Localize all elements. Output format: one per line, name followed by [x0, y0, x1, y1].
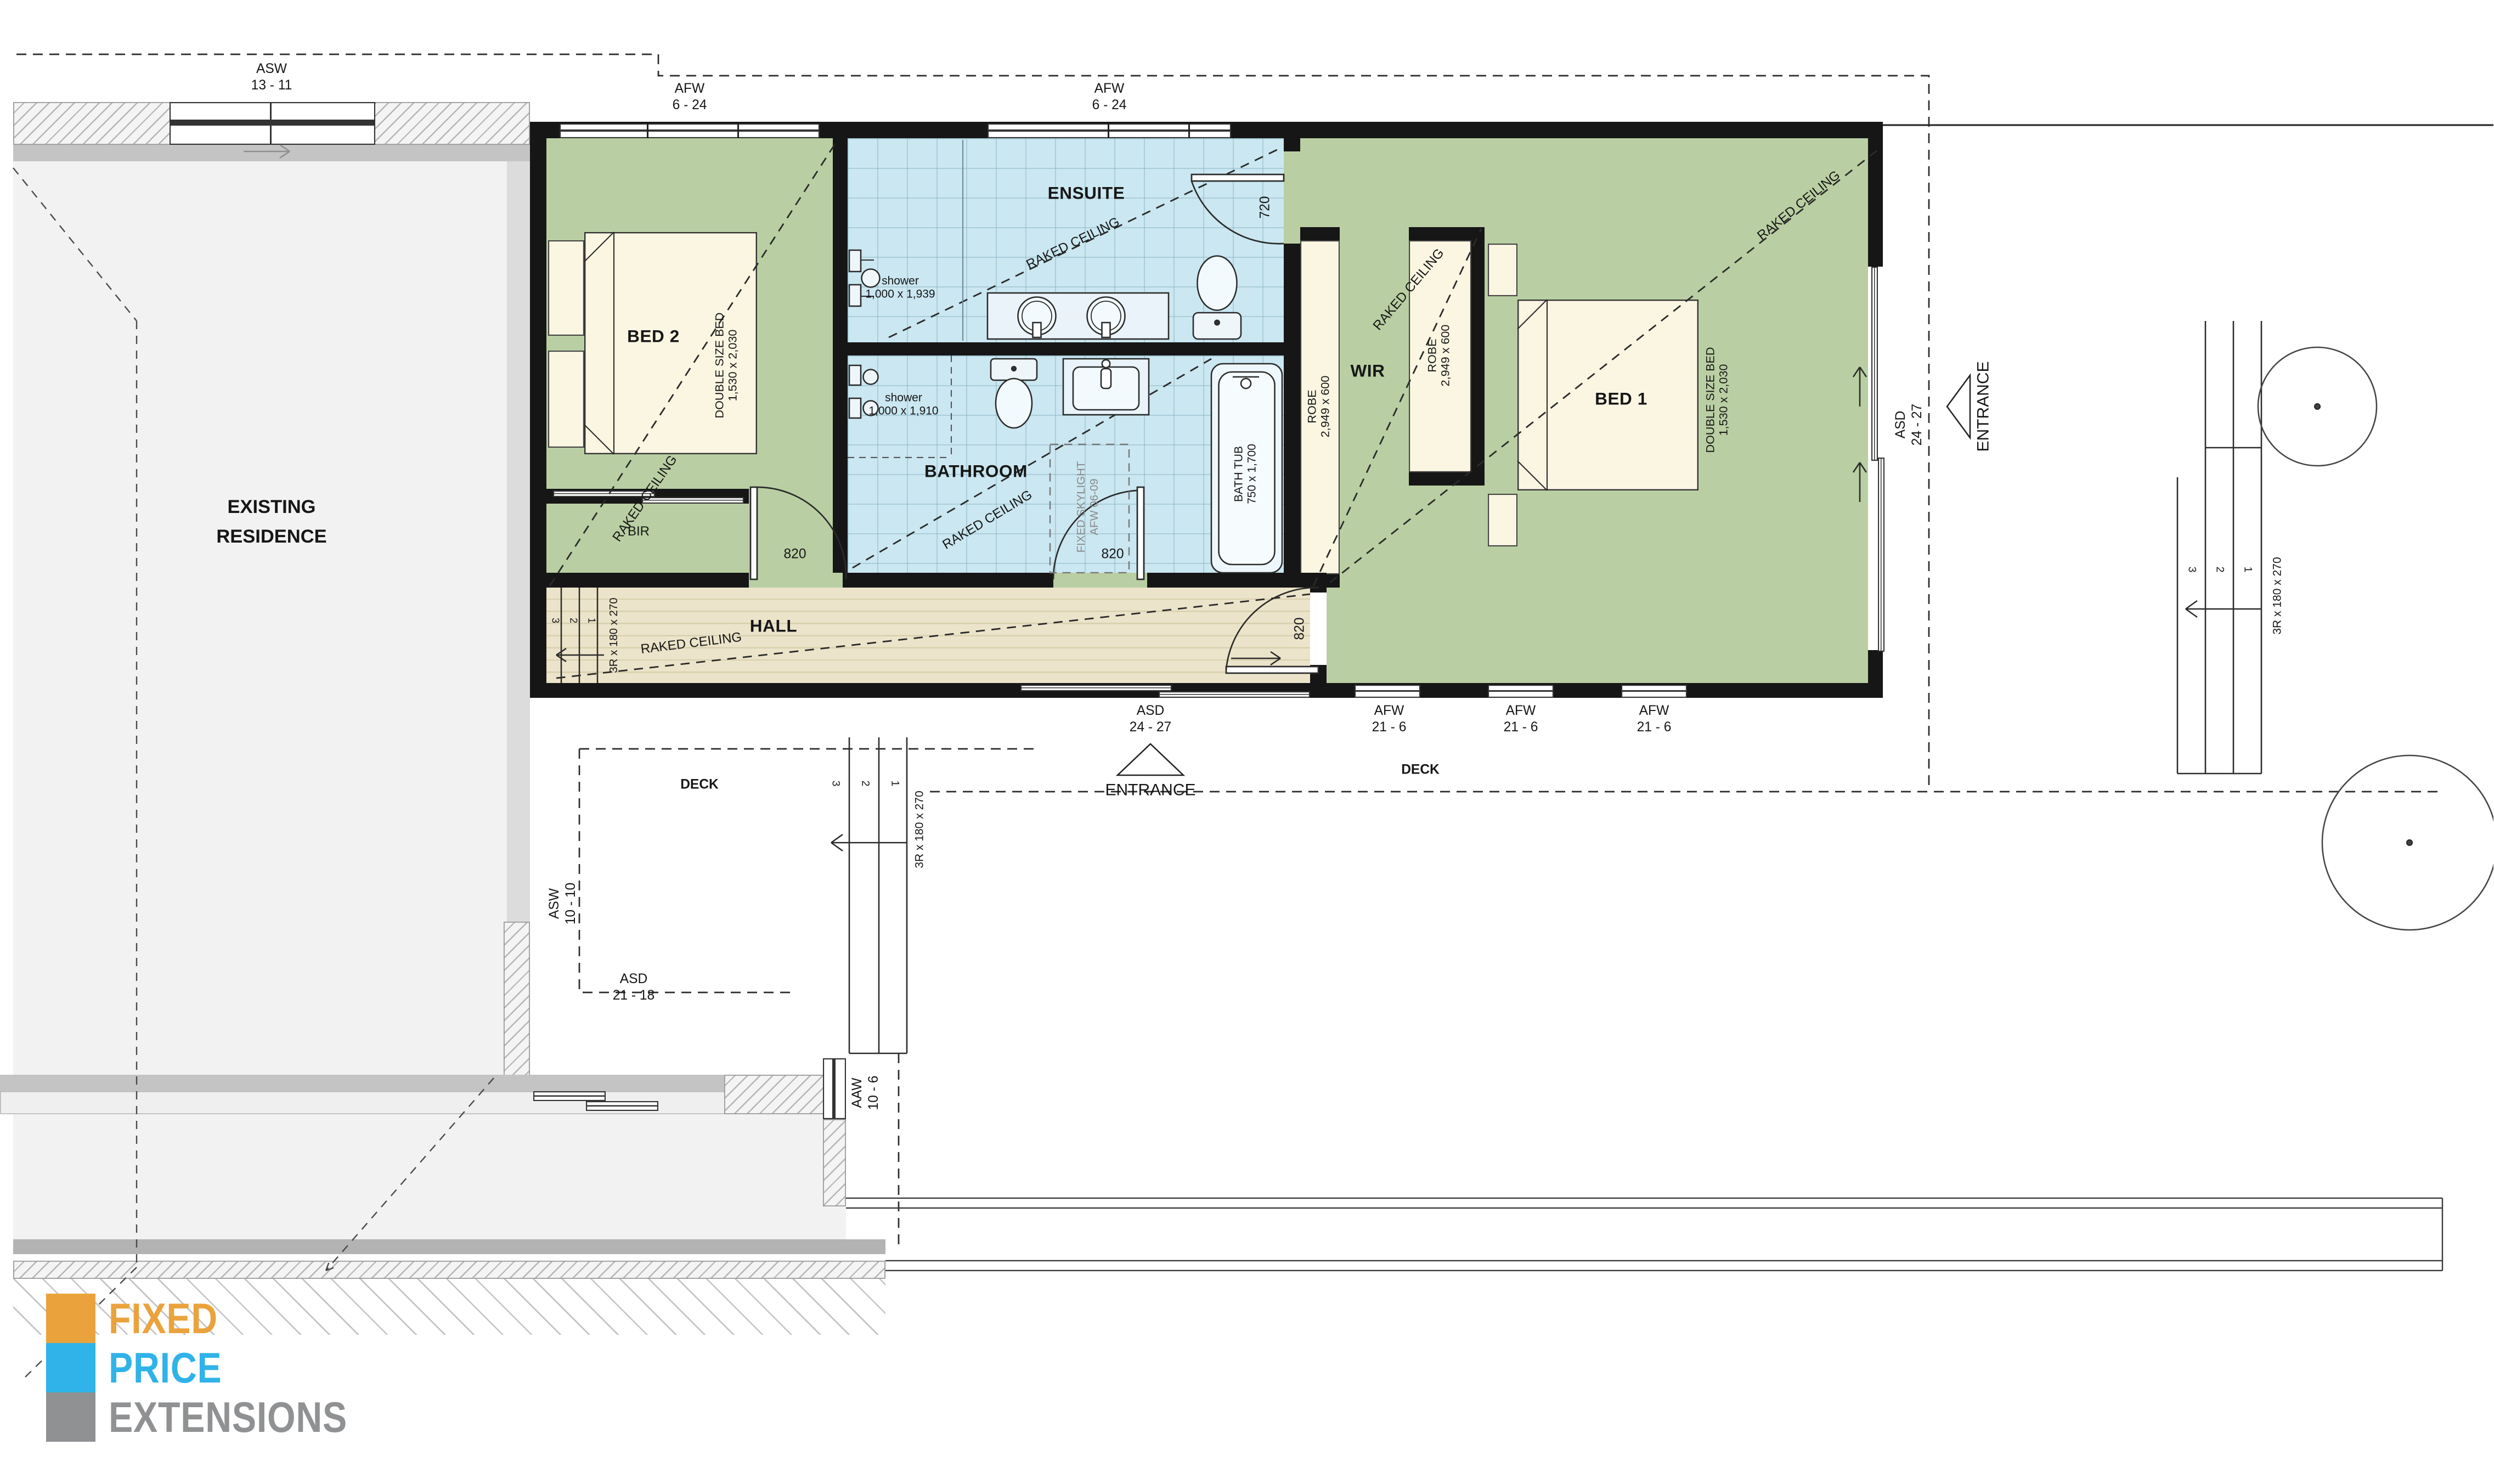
bathroom-floor: [848, 356, 1284, 573]
label-asw-10-10: ASW10 - 10: [547, 883, 579, 925]
wall-left: [530, 122, 546, 698]
label-asw-13-11: ASW13 - 11: [251, 61, 292, 93]
wall-robe-left-top: [1300, 227, 1340, 240]
hall-stair-num-1: 1: [583, 618, 595, 623]
bed2-bedside-bottom: [548, 351, 584, 448]
deck-stair-spec: 3R x 180 x 270: [915, 791, 929, 868]
wall-wir-lower: [1284, 244, 1300, 588]
dim-bed1: DOUBLE SIZE BED1,530 x 2,030: [1705, 347, 1733, 453]
label-robe-left: ROBE2,949 x 600: [1306, 376, 1334, 438]
label-entrance-right: ENTRANCE: [1975, 361, 1994, 452]
wall-right-top: [1868, 122, 1883, 267]
residence-asw-window-divider: [270, 102, 272, 145]
garden-stair-spec: 3R x 180 x 270: [2273, 557, 2287, 634]
room-label-ensuite: ENSUITE: [1048, 184, 1125, 204]
afw-window-ensuite-mullion-1: [1108, 123, 1110, 138]
label-afw-21-6-a: AFW21 - 6: [1372, 703, 1407, 735]
room-label-deck-right: DECK: [1401, 762, 1440, 778]
logo-square-blue: [46, 1343, 95, 1392]
label-afw-6-24-ensuite: AFW6 - 24: [1092, 81, 1127, 113]
label-robe-right: ROBE2,949 x 600: [1426, 325, 1454, 387]
label-skylight: FIXED SKYLIGHTAFW 06-09: [1076, 461, 1103, 553]
wall-ensuite-bathroom: [848, 342, 1284, 356]
afw-window-bed2: [560, 123, 820, 138]
doorpost-hall-top: [1310, 573, 1327, 593]
afw-window-b1: [1355, 684, 1420, 697]
wall-bed2-ensuite: [833, 138, 848, 573]
label-asd-bottom: ASD24 - 27: [1130, 703, 1172, 735]
room-label-bathroom: BATHROOM: [924, 462, 1028, 482]
wall-hall-b: [843, 573, 1053, 588]
wall-hall-a: [546, 573, 749, 588]
room-label-wir: WIR: [1350, 362, 1385, 382]
deck-stair-num-1: 1: [888, 781, 900, 787]
room-label-bed1: BED 1: [1595, 390, 1647, 410]
residence-bottom-wall: [0, 1075, 846, 1091]
deck-stair-num-3: 3: [828, 781, 841, 787]
label-shower-bathroom: shower1,000 x 1,910: [868, 393, 938, 420]
afw-window-bed2-mullion-1: [647, 123, 649, 138]
asd-door-hall-panel-2: [1159, 691, 1310, 697]
wall-robe-right-bottom: [1409, 472, 1485, 486]
label-bathtub: BATH TUB750 x 1,700: [1233, 444, 1261, 504]
garden-stair-num-1: 1: [2241, 567, 2253, 573]
logo-text-fixed: FIXED: [109, 1294, 237, 1343]
existing-residence-ext: [530, 1114, 846, 1239]
logo-text-extensions: EXTENSIONS: [109, 1392, 390, 1442]
label-afw-6-24-bed2: AFW6 - 24: [673, 81, 707, 113]
afw-window-b2: [1488, 684, 1554, 697]
bir-sliding-panel-2: [642, 496, 744, 503]
label-door-820-bed2: 820: [783, 546, 806, 562]
wall-right-bottom: [1868, 650, 1883, 698]
label-door-820-hall: 820: [1292, 617, 1308, 640]
logo-square-orange: [46, 1294, 95, 1343]
room-label-hall: HALL: [750, 617, 797, 637]
label-door-820-bathroom: 820: [1101, 546, 1124, 562]
boundary-hatch-strip: [13, 1261, 885, 1279]
wall-hall-c: [1147, 573, 1310, 588]
afw-window-bed2-mullion-2: [737, 123, 740, 138]
label-door-720: 720: [1257, 196, 1273, 218]
logo-square-gray: [46, 1392, 95, 1442]
floor-plan-canvas: ASW13 - 11 AFW6 - 24 AFW6 - 24 ENSUITE B…: [0, 0, 2494, 1484]
label-shower-ensuite: shower1,000 x 1,939: [865, 276, 935, 303]
floor-plan-sheet: ASW13 - 11 AFW6 - 24 AFW6 - 24 ENSUITE B…: [0, 0, 2494, 1484]
room-label-bed2: BED 2: [627, 327, 680, 347]
hall-stair-num-2: 2: [565, 618, 577, 623]
afw-window-b3: [1621, 684, 1687, 697]
bed1-bedside-top: [1488, 244, 1517, 296]
residence-asd-door-panel-1: [533, 1091, 606, 1101]
boundary-wall-band: [13, 1239, 885, 1254]
garden-stair-num-3: 3: [2185, 567, 2197, 573]
asd-door-right-panel-2: [1877, 458, 1884, 652]
label-asd-21-18: ASD21 - 18: [613, 972, 655, 1003]
doorpost-hall-bottom: [1310, 665, 1327, 683]
hall-stair-num-3: 3: [547, 618, 558, 623]
residence-asw-window: [170, 102, 375, 145]
label-entrance-bottom: ENTRANCE: [1105, 782, 1195, 801]
bed2-bedside-top: [548, 240, 584, 336]
label-afw-21-6-c: AFW21 - 6: [1637, 703, 1672, 735]
aaw-wall-hatch: [823, 1119, 846, 1206]
bed1-bedside-bottom: [1488, 494, 1517, 546]
residence-bottom-wall-inner: [0, 1091, 846, 1114]
deck-stair-num-2: 2: [858, 781, 871, 787]
wall-robe-right-side: [1471, 227, 1485, 486]
afw-window-ensuite-mullion-2: [1188, 123, 1190, 138]
wall-wir-upper: [1284, 138, 1300, 151]
residence-asd-door-panel-2: [586, 1101, 658, 1111]
label-asd-right: ASD24 - 27: [1893, 404, 1925, 446]
residence-top-inner-wall: [13, 145, 530, 161]
logo-text-price: PRICE: [109, 1343, 242, 1392]
hall-stair-spec: 3R x 180 x 270: [609, 597, 622, 673]
garden-stair-num-2: 2: [2213, 567, 2225, 573]
asd-door-hall-panel-1: [1020, 684, 1172, 691]
dim-bed2: DOUBLE SIZE BED1,530 x 2,030: [714, 313, 742, 419]
label-aaw-10-6: AAW10 - 6: [850, 1076, 882, 1110]
label-existing-residence: EXISTINGRESIDENCE: [216, 493, 326, 554]
label-afw-21-6-b: AFW21 - 6: [1504, 703, 1538, 735]
aaw-window: [823, 1058, 846, 1119]
asd-door-right-panel-1: [1871, 267, 1877, 461]
room-label-deck-left: DECK: [680, 777, 719, 793]
hall-floor: [546, 588, 1310, 683]
